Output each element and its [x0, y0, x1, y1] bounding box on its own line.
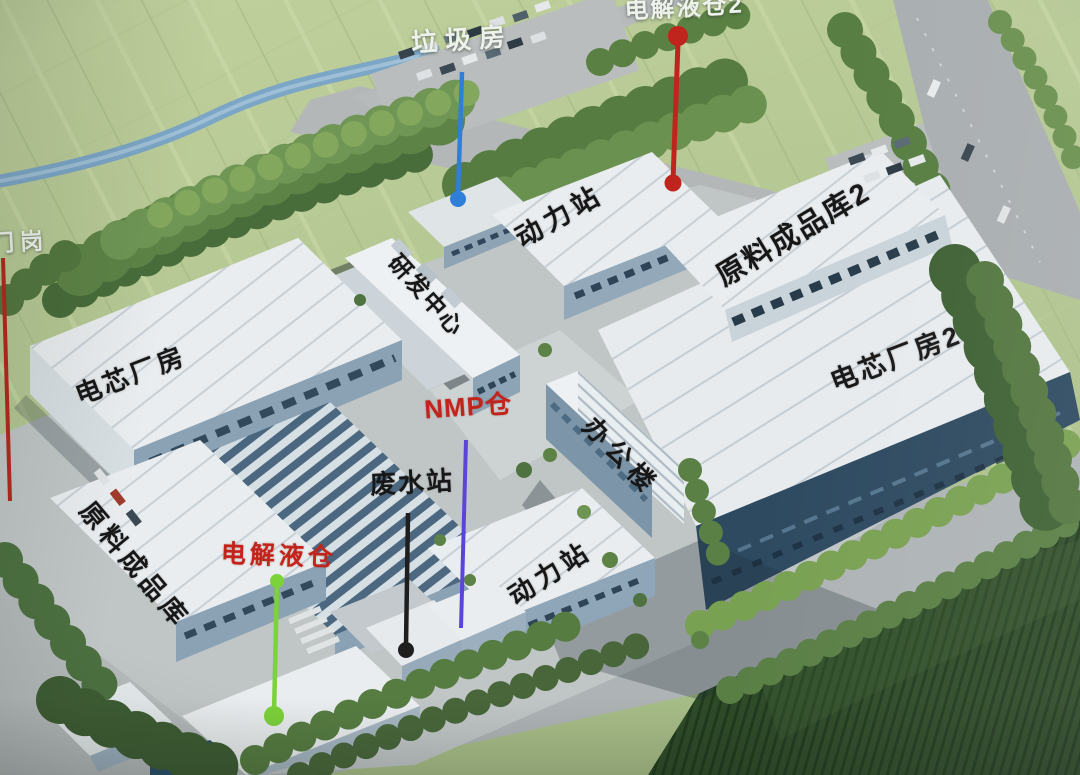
electrolyte-2-pin-dot: [665, 175, 682, 192]
campus-aerial-rendering: 门岗 垃圾房 电解液仓2 动力站 研发中心 原料成品库2 电芯厂房 电芯厂房2 …: [0, 0, 1080, 775]
electrolyte-1-pin-line: [274, 582, 277, 714]
wastewater-pin-line: [406, 513, 408, 646]
garbage-room-pin-dot: [450, 191, 466, 207]
scene-artwork: [0, 0, 1080, 775]
electrolyte-1-pin-top-dot: [270, 574, 284, 588]
wastewater-pin-dot: [398, 642, 414, 658]
electrolyte-2-pin-top-dot: [668, 26, 688, 46]
electrolyte-1-pin-dot: [264, 706, 284, 726]
